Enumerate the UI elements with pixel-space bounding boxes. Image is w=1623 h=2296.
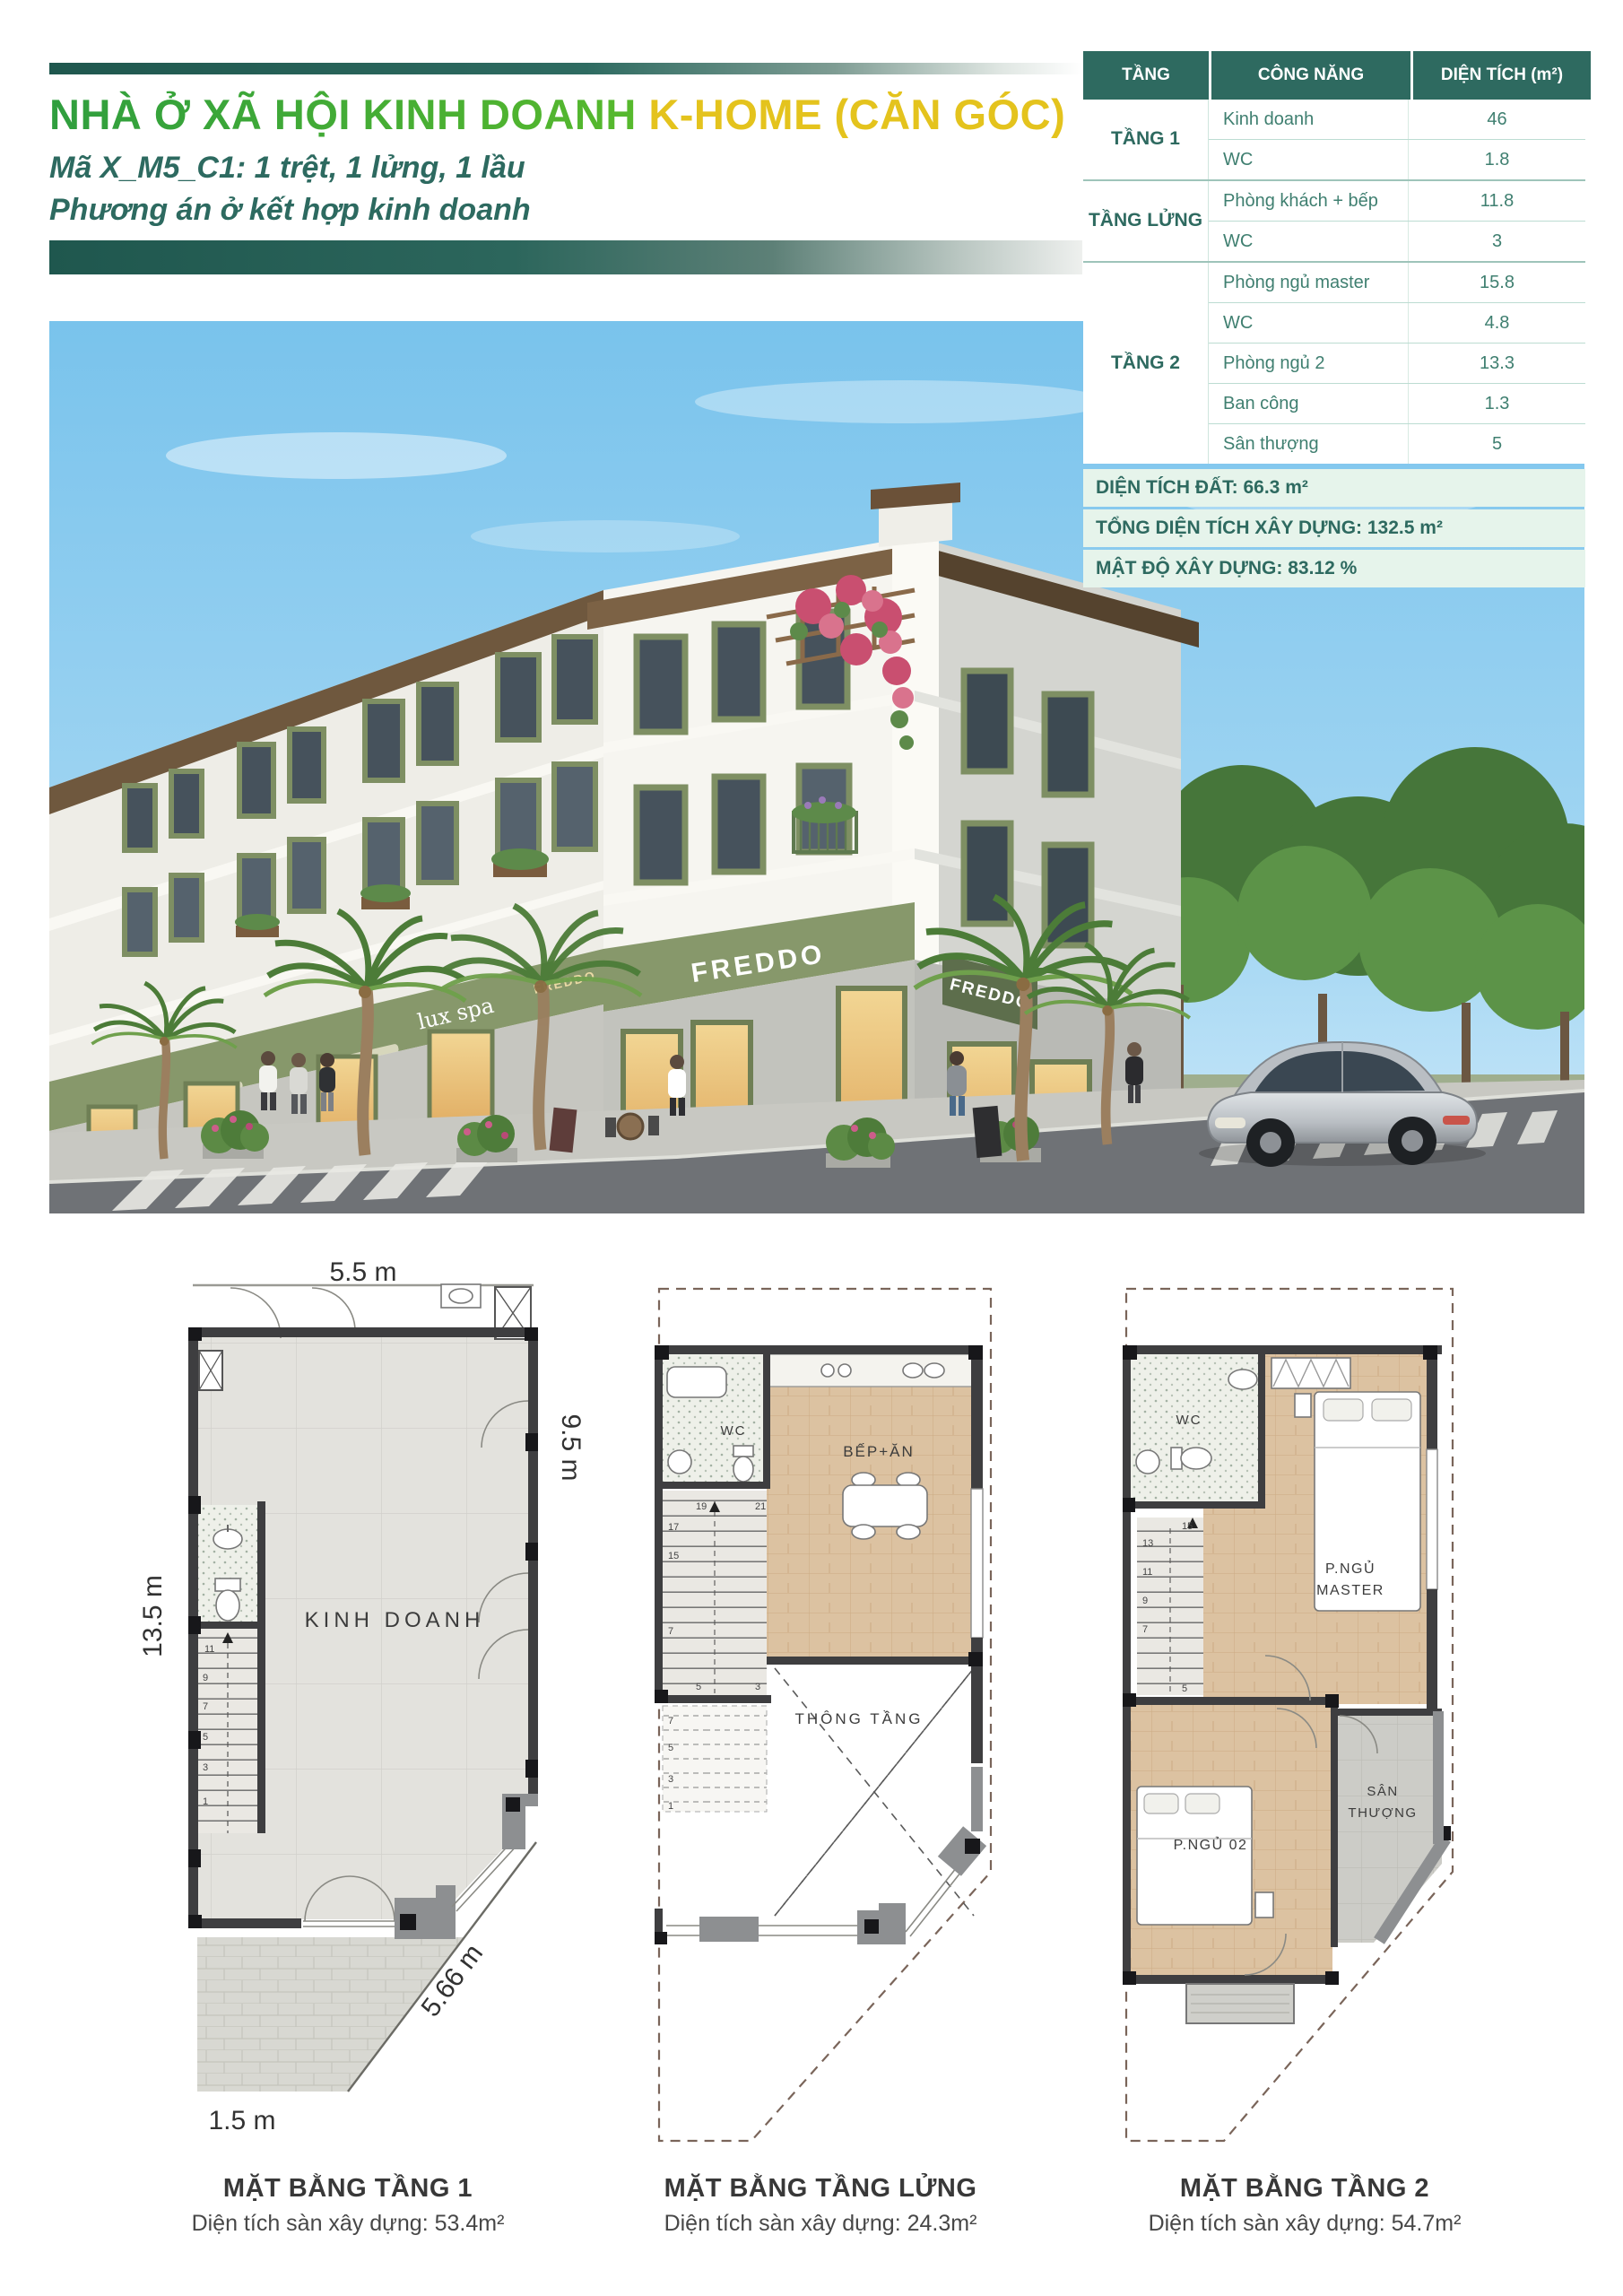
stair-number: 1 <box>203 1796 208 1807</box>
page-title-main: NHÀ Ở XÃ HỘI KINH DOANH <box>49 91 637 138</box>
cooktop <box>821 1364 834 1377</box>
table-row: WC 4.8 <box>1209 302 1585 343</box>
stair-number: 9 <box>203 1673 208 1683</box>
corner-balcony <box>792 766 856 852</box>
wall-bottom <box>188 1918 301 1928</box>
table-group-mezzanine: TẦNG LỬNG Phòng khách + bếp 11.8 WC 3 <box>1083 179 1585 261</box>
total-floor-area-bar: TỔNG DIỆN TÍCH XÂY DỰNG: 132.5 m² <box>1083 509 1585 547</box>
kitchen-sink <box>924 1363 944 1378</box>
stair-number: 19 <box>696 1501 707 1512</box>
wall-right-upper <box>1427 1345 1437 1449</box>
terrace-outer-wall <box>1433 1711 1444 1844</box>
dim-right: 9.5 m <box>556 1413 586 1481</box>
stair-number: 13 <box>1142 1538 1153 1549</box>
wall-left <box>655 1345 663 1699</box>
stair-number: 11 <box>1142 1567 1152 1578</box>
wall-top <box>655 1345 979 1354</box>
rail-block <box>699 1917 759 1942</box>
master-bed <box>1315 1392 1420 1611</box>
wc-toilet-tank <box>733 1446 753 1457</box>
wall-right <box>528 1327 538 1803</box>
header-gradient-bar-thin <box>49 63 1082 74</box>
menu-board <box>550 1108 577 1152</box>
void-area <box>775 1668 974 1916</box>
wall-bottom <box>1123 1975 1334 1984</box>
area-table-body: TẦNG 1 Kinh doanh 46 WC 1.8 TẦNG LỬNG <box>1083 100 1585 464</box>
plan2-note: Diện tích sàn xây dựng: 24.3m² <box>632 2211 1009 2237</box>
floor-plan-mezzanine: WC BẾP+ĂN 21 19 17 15 7 5 3 7 5 3 1 <box>644 1257 1002 2154</box>
table-row: Sân thượng 5 <box>1209 423 1585 464</box>
pillow <box>1324 1399 1363 1421</box>
stair-number: 15 <box>668 1551 679 1561</box>
wall-wc-bottom <box>1131 1501 1265 1509</box>
density-bar: MẬT ĐỘ XÂY DỰNG: 83.12 % <box>1083 550 1585 587</box>
stair-number: 7 <box>668 1716 673 1726</box>
wall-right-gray <box>971 1767 983 1831</box>
table-row: Phòng khách + bếp 11.8 <box>1209 181 1585 221</box>
stair-number: 7 <box>203 1701 208 1712</box>
dining-table <box>843 1485 927 1526</box>
stair-number: 5 <box>1182 1683 1187 1694</box>
wall-top <box>188 1327 538 1337</box>
wall-wc-right <box>1258 1354 1265 1505</box>
sidewalk-wedge <box>197 1937 465 2092</box>
stair-number: 17 <box>668 1522 679 1533</box>
plan1-title: MẶT BẰNG TẦNG 1 <box>160 2174 536 2204</box>
kitchen-sink <box>903 1363 923 1378</box>
room-label-bedroom2: P.NGỦ 02 <box>1174 1836 1248 1853</box>
room-label-void: THÔNG TẦNG <box>794 1710 923 1727</box>
pillow <box>1185 1794 1219 1813</box>
table-row: WC 3 <box>1209 221 1585 261</box>
wall-left <box>1123 1345 1131 1984</box>
shaft-box-left <box>199 1351 222 1390</box>
plan3-note: Diện tích sàn xây dựng: 54.7m² <box>1116 2211 1493 2237</box>
area-table-header: TẦNG CÔNG NĂNG DIỆN TÍCH (m²) <box>1083 51 1585 100</box>
floor-plan-2nd: WC P.NGỦ MASTER 15 13 11 9 7 5 P.NGỦ 02 … <box>1110 1257 1480 2154</box>
wardrobe <box>1271 1358 1350 1388</box>
table-row: Phòng ngủ master 15.8 <box>1209 263 1585 302</box>
wc-sink <box>1228 1370 1257 1389</box>
wc-sink <box>213 1529 242 1549</box>
wc-toilet <box>733 1457 753 1482</box>
area-table-panel: TẦNG CÔNG NĂNG DIỆN TÍCH (m²) TẦNG 1 Kin… <box>1083 51 1585 590</box>
wall-wc-stairs <box>257 1501 265 1833</box>
plan1-note: Diện tích sàn xây dựng: 53.4m² <box>160 2211 536 2237</box>
plan3-title: MẶT BẰNG TẦNG 2 <box>1116 2174 1493 2204</box>
wc-toilet-tank <box>1171 1448 1182 1469</box>
window-right <box>1427 1449 1437 1589</box>
stair-number: 3 <box>755 1682 760 1692</box>
wall-wc-right <box>763 1354 770 1489</box>
nightstand <box>1255 1892 1273 1918</box>
wall-mid <box>1123 1697 1334 1705</box>
room-label-master-1: P.NGỦ <box>1325 1560 1376 1577</box>
dim-top: 5.5 m <box>329 1257 396 1287</box>
pillow <box>1144 1794 1178 1813</box>
table-row: WC 1.8 <box>1209 139 1585 179</box>
room-label-terrace-2: THƯỢNG <box>1348 1805 1417 1821</box>
stair-number: 9 <box>1142 1596 1148 1606</box>
nightstand <box>1295 1394 1311 1417</box>
brochure-page: NHÀ Ở XÃ HỘI KINH DOANH K-HOME (CĂN GÓC)… <box>0 0 1623 2296</box>
table-group-floor1: TẦNG 1 Kinh doanh 46 WC 1.8 <box>1083 100 1585 179</box>
pillow <box>1372 1399 1411 1421</box>
plan2-title: MẶT BẰNG TẦNG LỬNG <box>632 2174 1009 2204</box>
wall-wc-bottom <box>198 1622 261 1629</box>
room-label-wc: WC <box>721 1423 747 1439</box>
room-label-terrace-1: SÂN <box>1367 1784 1398 1799</box>
wall-terrace-left <box>1331 1705 1338 1947</box>
stair-number: 5 <box>696 1682 701 1692</box>
wc-toilet <box>1181 1448 1211 1469</box>
stair-number: 5 <box>668 1743 673 1753</box>
stair-number: 3 <box>668 1774 673 1785</box>
table-row: Ban công 1.3 <box>1209 383 1585 423</box>
stair-number: 11 <box>204 1644 214 1655</box>
unit-code-subtitle: Mã X_M5_C1: 1 trệt, 1 lửng, 1 lầu <box>49 151 525 186</box>
porch-fixture-basin <box>449 1289 473 1303</box>
col-header-floor: TẦNG <box>1083 51 1209 100</box>
wc-basin <box>1136 1450 1159 1474</box>
plan3-caption: MẶT BẰNG TẦNG 2 Diện tích sàn xây dựng: … <box>1116 2174 1493 2237</box>
room-label-kinh-doanh: KINH DOANH <box>305 1608 485 1632</box>
stair-number: 15 <box>1182 1521 1193 1532</box>
stair-number: 7 <box>668 1626 673 1637</box>
table-group-floor2: TẦNG 2 Phòng ngủ master 15.8 WC 4.8 Phòn… <box>1083 261 1585 464</box>
floor-plan-1: 5.5 m 13.5 m 9.5 m 5.66 m 1.5 m <box>126 1257 628 2154</box>
wc-toilet <box>216 1590 239 1621</box>
room-label-wc: WC <box>1176 1413 1202 1428</box>
dim-left: 13.5 m <box>138 1575 168 1657</box>
land-area-bar: DIỆN TÍCH ĐẤT: 66.3 m² <box>1083 469 1585 507</box>
terrace-floor <box>1337 1712 1442 1943</box>
floor-label: TẦNG 1 <box>1083 100 1209 179</box>
stair-number: 3 <box>203 1762 208 1773</box>
room-label-master-2: MASTER <box>1316 1583 1384 1598</box>
stair-number: 5 <box>203 1732 208 1743</box>
page-title-suffix: K-HOME (CĂN GÓC) <box>648 91 1065 138</box>
wall-top <box>1123 1345 1442 1354</box>
wc-toilet-tank <box>215 1578 240 1591</box>
plan2-caption: MẶT BẰNG TẦNG LỬNG Diện tích sàn xây dựn… <box>632 2174 1009 2237</box>
cooktop <box>838 1364 851 1377</box>
floor-label: TẦNG 2 <box>1083 263 1209 464</box>
col-header-function: CÔNG NĂNG <box>1211 51 1410 100</box>
wall-wc-bottom <box>663 1482 767 1489</box>
stair-number: 7 <box>1142 1624 1148 1635</box>
summary-bars: DIỆN TÍCH ĐẤT: 66.3 m² TỔNG DIỆN TÍCH XÂ… <box>1083 469 1585 587</box>
table-row: Phòng ngủ 2 13.3 <box>1209 343 1585 383</box>
window-right <box>971 1489 983 1638</box>
stair-number: 1 <box>668 1801 673 1812</box>
page-title: NHÀ Ở XÃ HỘI KINH DOANH K-HOME (CĂN GÓC) <box>49 90 1065 139</box>
wall-right <box>971 1345 983 1489</box>
wall-terrace-top <box>1331 1709 1442 1716</box>
menu-board <box>973 1106 1002 1158</box>
wall-landing <box>655 1695 771 1703</box>
col-header-area: DIỆN TÍCH (m²) <box>1413 51 1591 100</box>
room-label-kitchen: BẾP+ĂN <box>843 1443 915 1460</box>
entry-door-arc <box>312 1288 355 1331</box>
plan1-caption: MẶT BẰNG TẦNG 1 Diện tích sàn xây dựng: … <box>160 2174 536 2237</box>
usage-subtitle: Phương án ở kết hợp kinh doanh <box>49 193 531 228</box>
wc-bathtub <box>667 1367 726 1397</box>
hall-floor <box>1203 1505 1265 1704</box>
wc-basin <box>668 1450 691 1474</box>
stair-number: 21 <box>755 1501 766 1512</box>
header-gradient-bar-thick <box>49 240 1082 274</box>
table-row: Kinh doanh 46 <box>1209 100 1585 139</box>
wall-right-lower <box>1427 1589 1437 1711</box>
staircase-ghost <box>663 1706 767 1812</box>
wall-kitchen-bottom <box>767 1657 981 1665</box>
balcony <box>1186 1984 1294 2023</box>
dim-bottom: 1.5 m <box>208 2106 275 2135</box>
floor-label: TẦNG LỬNG <box>1083 181 1209 261</box>
